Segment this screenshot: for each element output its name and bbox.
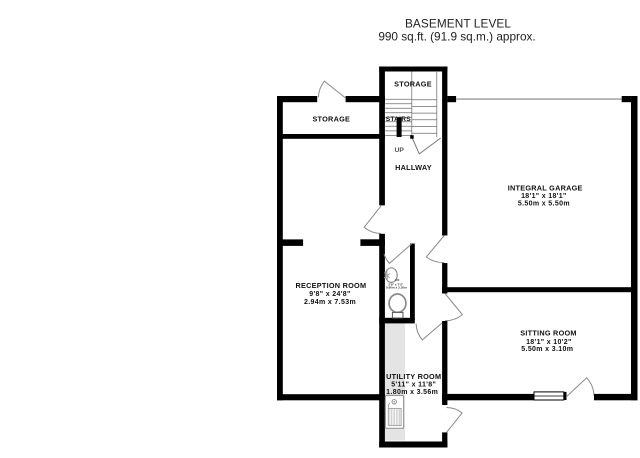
svg-text:5'11" x 11'8": 5'11" x 11'8"	[391, 382, 436, 389]
svg-text:STORAGE: STORAGE	[312, 115, 350, 124]
svg-text:9'8" x 24'8": 9'8" x 24'8"	[309, 291, 350, 298]
svg-text:18'1" x 10'2": 18'1" x 10'2"	[526, 339, 572, 346]
svg-text:BASEMENT LEVEL: BASEMENT LEVEL	[405, 17, 511, 31]
svg-text:18'1" x 18'1": 18'1" x 18'1"	[521, 193, 567, 200]
svg-text:RECEPTION ROOM: RECEPTION ROOM	[296, 281, 367, 290]
svg-text:UTILITY ROOM: UTILITY ROOM	[386, 372, 441, 381]
svg-text:990 sq.ft. (91.9 sq.m.) approx: 990 sq.ft. (91.9 sq.m.) approx.	[378, 30, 535, 44]
svg-text:STAIRS: STAIRS	[386, 116, 412, 123]
svg-text:STORAGE: STORAGE	[394, 80, 432, 89]
svg-text:5.50m x 3.10m: 5.50m x 3.10m	[521, 346, 573, 353]
svg-text:wc: wc	[394, 278, 399, 282]
svg-text:HALLWAY: HALLWAY	[395, 163, 432, 172]
svg-text:SITTING ROOM: SITTING ROOM	[520, 329, 577, 338]
svg-text:2.94m x 7.53m: 2.94m x 7.53m	[304, 299, 356, 306]
svg-text:1.80m x 3.56m: 1.80m x 3.56m	[386, 389, 438, 396]
svg-text:0.80m x 2.20m: 0.80m x 2.20m	[386, 286, 407, 290]
svg-text:INTEGRAL GARAGE: INTEGRAL GARAGE	[508, 183, 583, 192]
svg-text:UP: UP	[394, 147, 404, 154]
svg-text:5.50m x 5.50m: 5.50m x 5.50m	[518, 201, 570, 208]
